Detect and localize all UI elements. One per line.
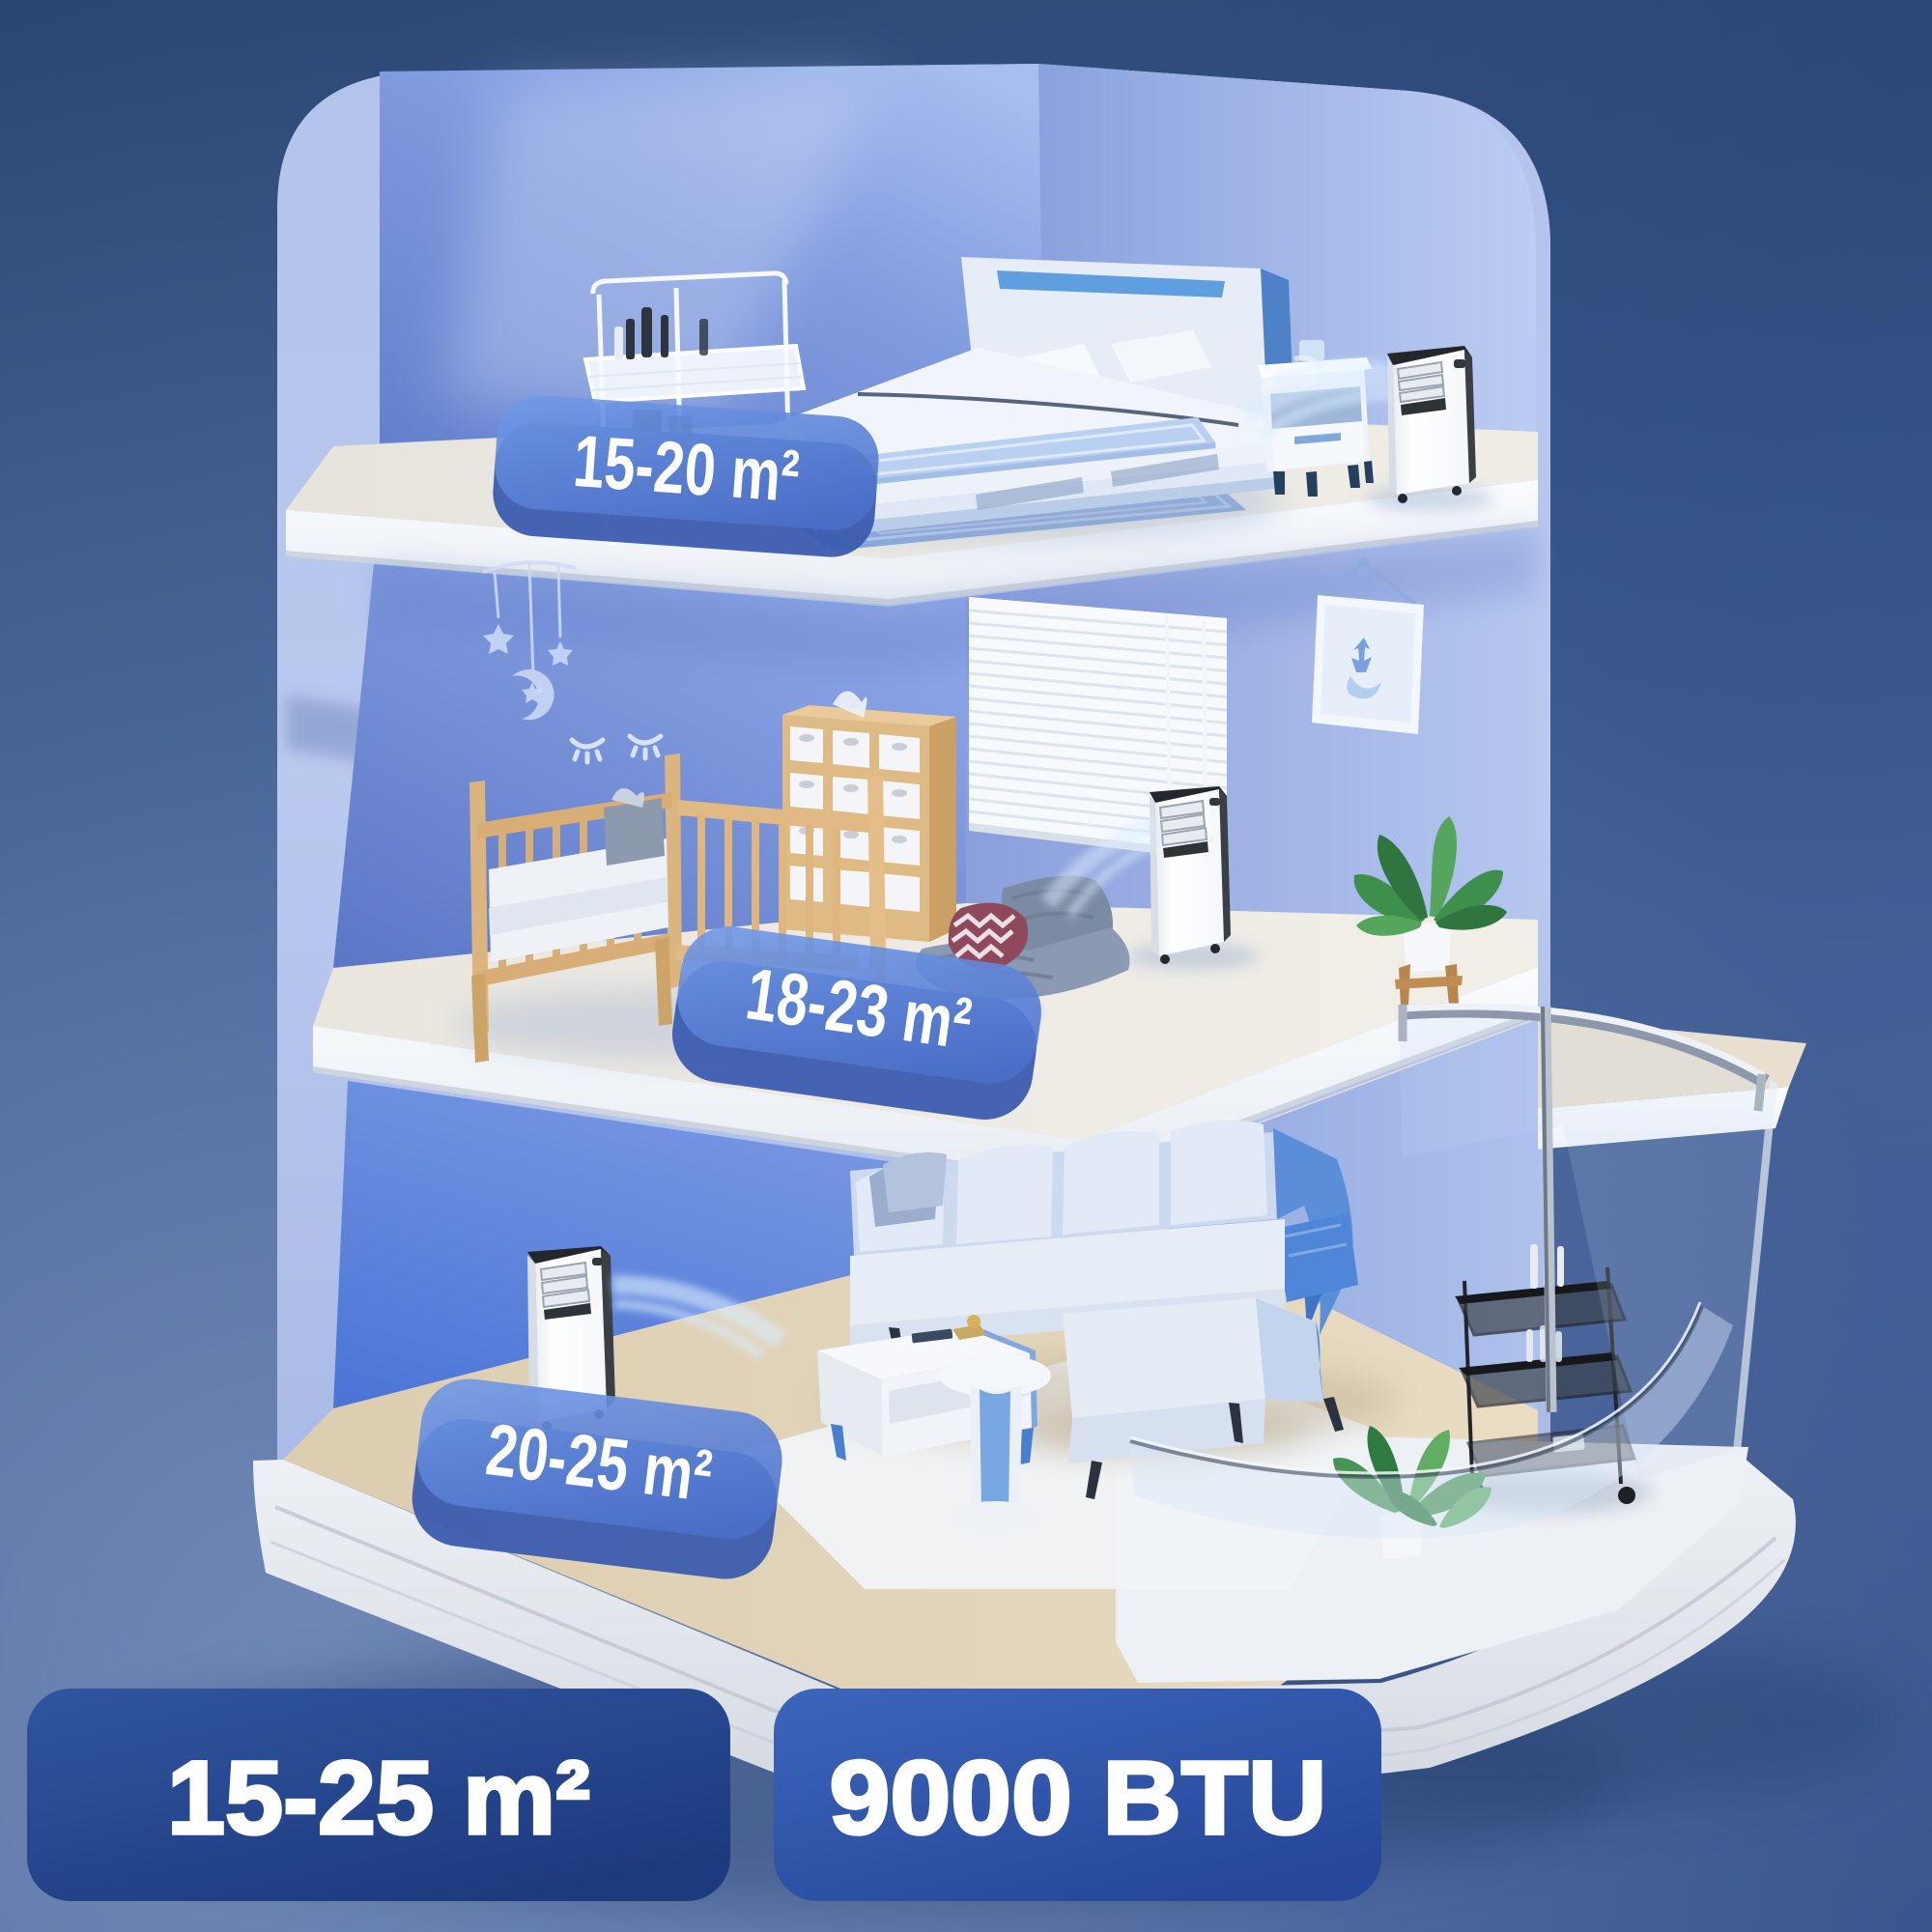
- svg-text:15-25 m²: 15-25 m²: [167, 1739, 590, 1856]
- svg-text:9000 BTU: 9000 BTU: [830, 1739, 1327, 1856]
- svg-text:15-20 m²: 15-20 m²: [571, 420, 802, 518]
